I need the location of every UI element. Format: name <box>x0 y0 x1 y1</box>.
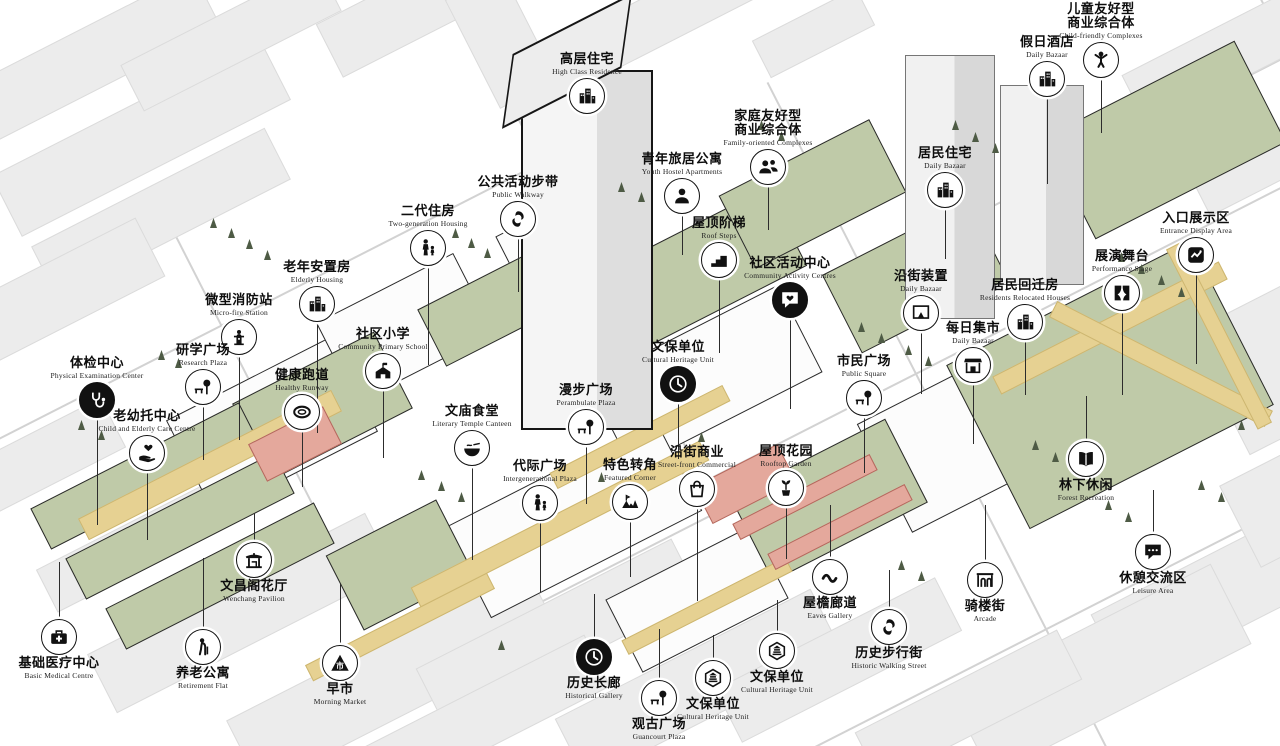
plant-pot-icon <box>768 470 804 506</box>
poi-label: 青年旅居公寓Youth Hostel Apartments <box>641 153 722 176</box>
tree-icon <box>246 239 253 249</box>
leader-line <box>97 417 98 525</box>
leader-line <box>786 505 787 559</box>
leader-line <box>147 470 148 540</box>
hand-heart-icon <box>129 435 165 471</box>
leader-line <box>889 570 890 610</box>
leader-line <box>945 207 946 259</box>
poi-label-en: Youth Hostel Apartments <box>641 168 722 176</box>
poi-label-zh: 市民广场 <box>837 355 891 369</box>
school-icon <box>365 353 401 389</box>
chart-badge-icon <box>1178 237 1214 273</box>
poi-label: 基础医疗中心Basic Medical Centre <box>18 657 99 680</box>
poi-label-zh: 基础医疗中心 <box>18 657 99 671</box>
tree-icon <box>458 492 465 502</box>
corner-icon <box>612 484 648 520</box>
poi-label: 假日酒店Daily Bazaar <box>1020 36 1074 59</box>
tree-icon <box>452 228 459 238</box>
poi-label: 研学广场Research Plaza <box>176 344 230 367</box>
leader-line <box>678 401 679 459</box>
leader-line <box>1086 396 1087 442</box>
leader-line <box>1047 96 1048 184</box>
hexagon-pagoda-icon <box>759 633 795 669</box>
child-icon <box>1083 42 1119 78</box>
buildings-icon <box>569 78 605 114</box>
poi-label-zh: 青年旅居公寓 <box>641 153 722 167</box>
leader-line <box>864 415 865 473</box>
poi-label-zh: 骑楼街 <box>965 600 1006 614</box>
triangle-market-icon: 市 <box>322 645 358 681</box>
leader-line <box>830 505 831 560</box>
central-tower <box>521 70 653 430</box>
poi-label-zh: 儿童友好型商业综合体 <box>1065 3 1138 31</box>
stethoscope-icon <box>79 382 115 418</box>
bench-tree-icon <box>846 380 882 416</box>
leader-line <box>790 317 791 409</box>
curtains-icon <box>1104 275 1140 311</box>
leader-line <box>239 354 240 440</box>
bench-tree-icon <box>641 680 677 716</box>
poi-label-zh: 体检中心 <box>51 357 144 371</box>
poi-label: 儿童友好型商业综合体Child-friendly Complexes <box>1059 3 1142 40</box>
elderly-icon <box>185 629 221 665</box>
poi-label-en: Literary Temple Canteen <box>432 420 511 428</box>
context-building <box>752 0 875 78</box>
book-icon <box>1068 441 1104 477</box>
poi-label-en: Retirement Flat <box>176 682 230 690</box>
arcade-icon <box>967 562 1003 598</box>
leader-line <box>777 600 778 634</box>
buildings-icon <box>1007 304 1043 340</box>
leader-line <box>1122 310 1123 395</box>
tree-icon <box>905 345 912 355</box>
poi-label-zh: 假日酒店 <box>1020 36 1074 50</box>
tower-building <box>1000 85 1084 285</box>
tree-icon <box>925 356 932 366</box>
poi-label: 文庙食堂Literary Temple Canteen <box>432 405 511 428</box>
leader-line <box>383 388 384 458</box>
masterplan-diagram: 高层住宅High Class Residence儿童友好型商业综合体Child-… <box>0 0 1280 746</box>
chat-heart-icon <box>772 282 808 318</box>
clock-icon <box>660 366 696 402</box>
hexagon-pagoda-icon <box>695 660 731 696</box>
leader-line <box>921 330 922 394</box>
buildings-icon <box>1029 61 1065 97</box>
frame-arrow-icon <box>903 295 939 331</box>
swirl-icon <box>500 201 536 237</box>
leader-line <box>254 513 255 543</box>
tree-icon <box>438 481 445 491</box>
tree-icon <box>1198 480 1205 490</box>
poi-label-en: Basic Medical Centre <box>18 672 99 680</box>
leader-line <box>340 584 341 646</box>
poi-label-zh: 微型消防站 <box>205 294 273 308</box>
poi-label-zh: 文庙食堂 <box>432 405 511 419</box>
swirl-icon <box>871 609 907 645</box>
market-stall-icon <box>955 347 991 383</box>
leader-line <box>1101 77 1102 133</box>
leader-line <box>59 562 60 620</box>
leader-line <box>540 520 541 592</box>
medical-bag-icon <box>41 619 77 655</box>
poi-label: 骑楼街Arcade <box>965 600 1006 623</box>
leader-line <box>697 506 698 601</box>
clock-icon <box>576 639 612 675</box>
leader-line <box>973 382 974 444</box>
leader-line <box>768 184 769 230</box>
poi-label: 二代住房Two-generation Housing <box>388 205 467 228</box>
leader-line <box>1196 272 1197 364</box>
tree-icon <box>1105 500 1112 510</box>
poi-label: 体检中心Physical Examination Center <box>51 357 144 380</box>
parent-child-icon <box>410 230 446 266</box>
poi-label-en: Child-friendly Complexes <box>1059 32 1142 40</box>
bench-tree-icon <box>568 409 604 445</box>
poi-label-en: Research Plaza <box>176 359 230 367</box>
bench-tree-icon <box>185 369 221 405</box>
leader-line <box>594 594 595 640</box>
bowl-icon <box>454 430 490 466</box>
leader-line <box>203 404 204 460</box>
leader-line <box>203 558 204 630</box>
squiggle-icon <box>812 559 848 595</box>
tree-icon <box>898 560 905 570</box>
leader-line <box>586 444 587 504</box>
tree-icon <box>778 131 785 141</box>
leader-line <box>472 465 473 560</box>
track-icon <box>284 394 320 430</box>
people-icon <box>750 149 786 185</box>
pavilion-icon <box>236 542 272 578</box>
leader-line <box>630 519 631 577</box>
shopping-icon <box>679 471 715 507</box>
leader-line <box>518 236 519 292</box>
poi-label-en: Arcade <box>965 615 1006 623</box>
leader-line <box>659 629 660 681</box>
leader-line <box>985 505 986 563</box>
tree-icon <box>484 248 491 258</box>
svg-text:市: 市 <box>336 660 344 670</box>
poi-label-en: Public Square <box>837 370 891 378</box>
leader-line <box>1025 339 1026 395</box>
tree-icon <box>1118 252 1125 262</box>
tree-icon <box>468 238 475 248</box>
tree-icon <box>1125 512 1132 522</box>
tree-icon <box>228 228 235 238</box>
tree-icon <box>758 120 765 130</box>
poi-label-zh: 研学广场 <box>176 344 230 358</box>
leader-line <box>302 429 303 487</box>
tree-icon <box>264 250 271 260</box>
tree-icon <box>175 358 182 368</box>
tree-icon <box>418 470 425 480</box>
parent-child-icon <box>522 485 558 521</box>
leader-line <box>1153 490 1154 535</box>
tree-icon <box>918 571 925 581</box>
buildings-icon <box>927 172 963 208</box>
leader-line <box>428 265 429 365</box>
person-icon <box>664 178 700 214</box>
buildings-icon <box>299 286 335 322</box>
leader-line <box>682 213 683 255</box>
speech-dots-icon <box>1135 534 1171 570</box>
poi-label: 市民广场Public Square <box>837 355 891 378</box>
leader-line <box>713 635 714 661</box>
stairs-icon <box>701 242 737 278</box>
hydrant-icon <box>221 319 257 355</box>
poi-label-en: Daily Bazaar <box>1020 51 1074 59</box>
leader-line <box>719 277 720 353</box>
